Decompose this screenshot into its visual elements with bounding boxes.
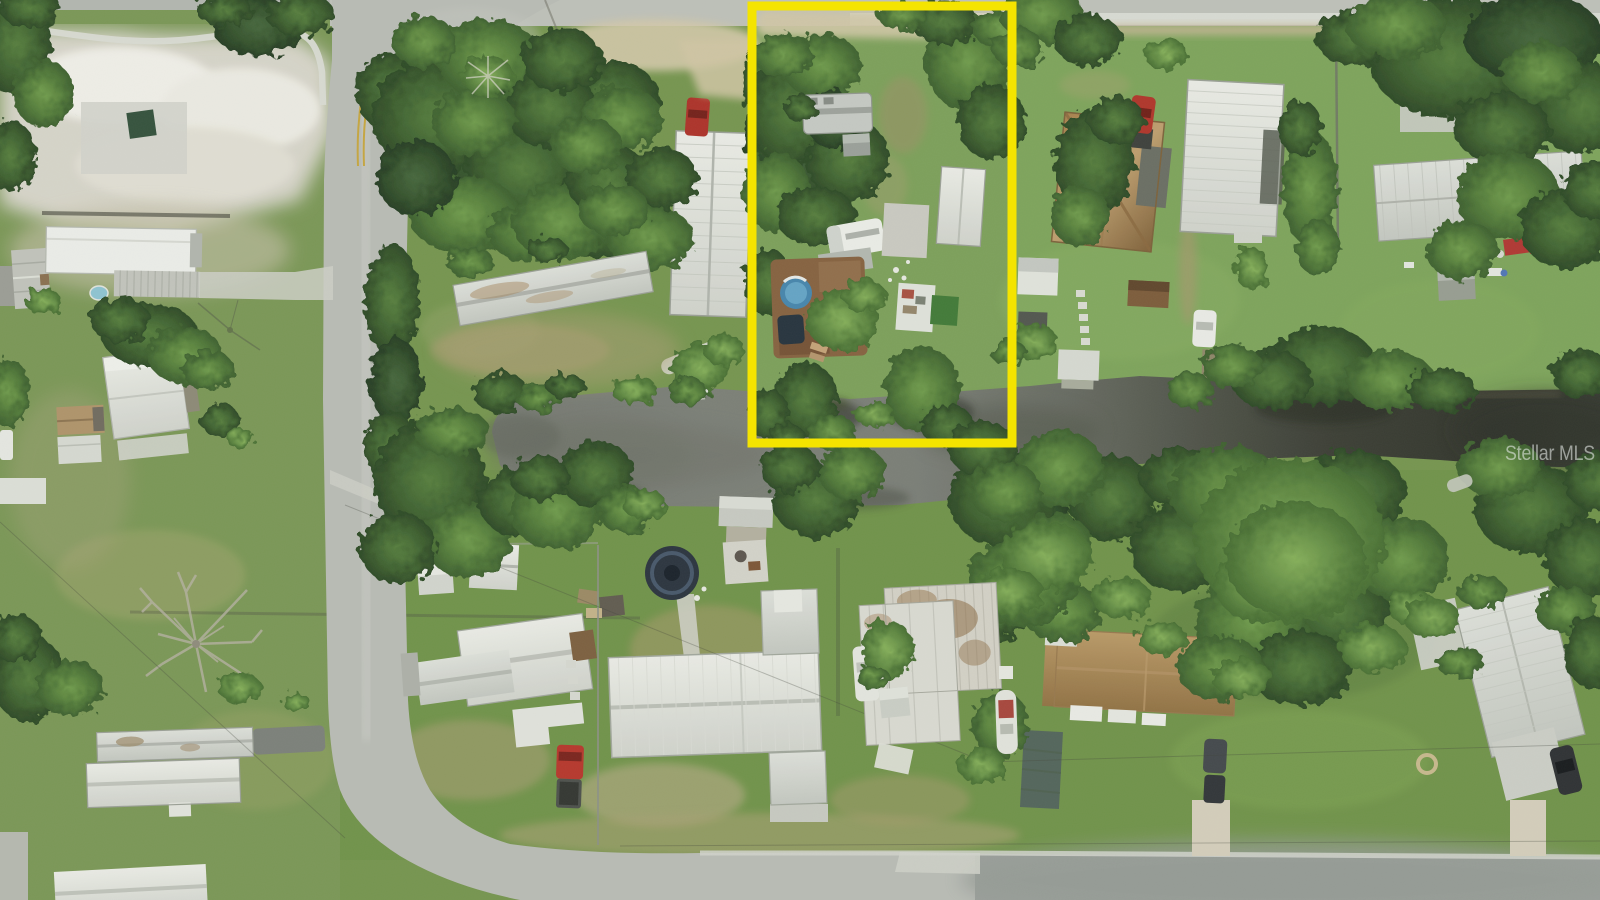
svg-text:Stellar MLS: Stellar MLS: [1505, 442, 1595, 465]
